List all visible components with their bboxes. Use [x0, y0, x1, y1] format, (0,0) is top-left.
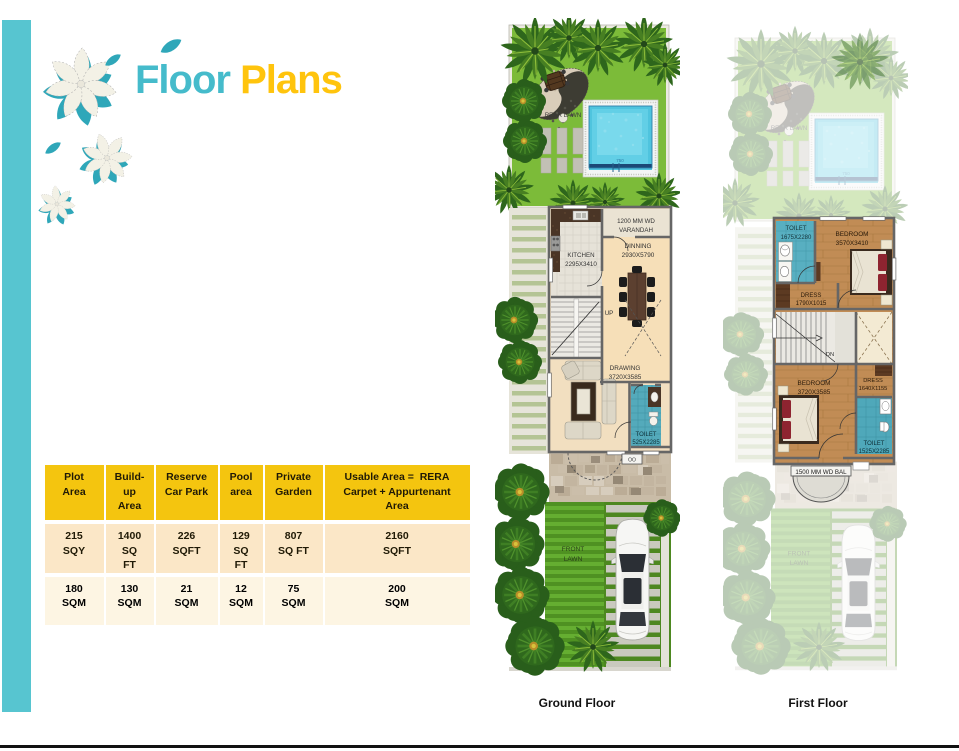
svg-text:3570X3410: 3570X3410 — [836, 240, 869, 247]
svg-text:VARANDAH: VARANDAH — [619, 227, 653, 234]
svg-text:UP: UP — [605, 310, 614, 317]
svg-text:DN: DN — [826, 352, 834, 358]
svg-text:DINNING: DINNING — [625, 243, 652, 250]
svg-text:525X2285: 525X2285 — [632, 440, 660, 446]
svg-text:1640X1155: 1640X1155 — [859, 386, 888, 392]
svg-text:TOILET: TOILET — [786, 226, 807, 232]
svg-text:2295X3410: 2295X3410 — [565, 261, 597, 268]
svg-text:TOILET: TOILET — [864, 441, 885, 447]
svg-text:2930X5790: 2930X5790 — [622, 252, 655, 259]
svg-text:TOILET: TOILET — [636, 432, 657, 438]
svg-text:1675X2280: 1675X2280 — [781, 235, 812, 241]
svg-text:DRAWING: DRAWING — [610, 365, 641, 372]
svg-text:1525X2285: 1525X2285 — [859, 449, 890, 455]
svg-text:KITCHEN: KITCHEN — [567, 252, 594, 259]
svg-text:BEDROOM: BEDROOM — [835, 231, 868, 238]
svg-text:1790X1015: 1790X1015 — [796, 301, 827, 307]
svg-text:OO: OO — [628, 458, 636, 464]
svg-text:1200 MM WD: 1200 MM WD — [617, 218, 655, 225]
svg-text:BEDROOM: BEDROOM — [797, 380, 830, 387]
svg-text:3720X3585: 3720X3585 — [798, 389, 831, 396]
svg-text:1500 MM WD BAL: 1500 MM WD BAL — [795, 469, 847, 476]
svg-text:DRESS: DRESS — [863, 378, 883, 384]
svg-text:DRESS: DRESS — [801, 293, 822, 299]
